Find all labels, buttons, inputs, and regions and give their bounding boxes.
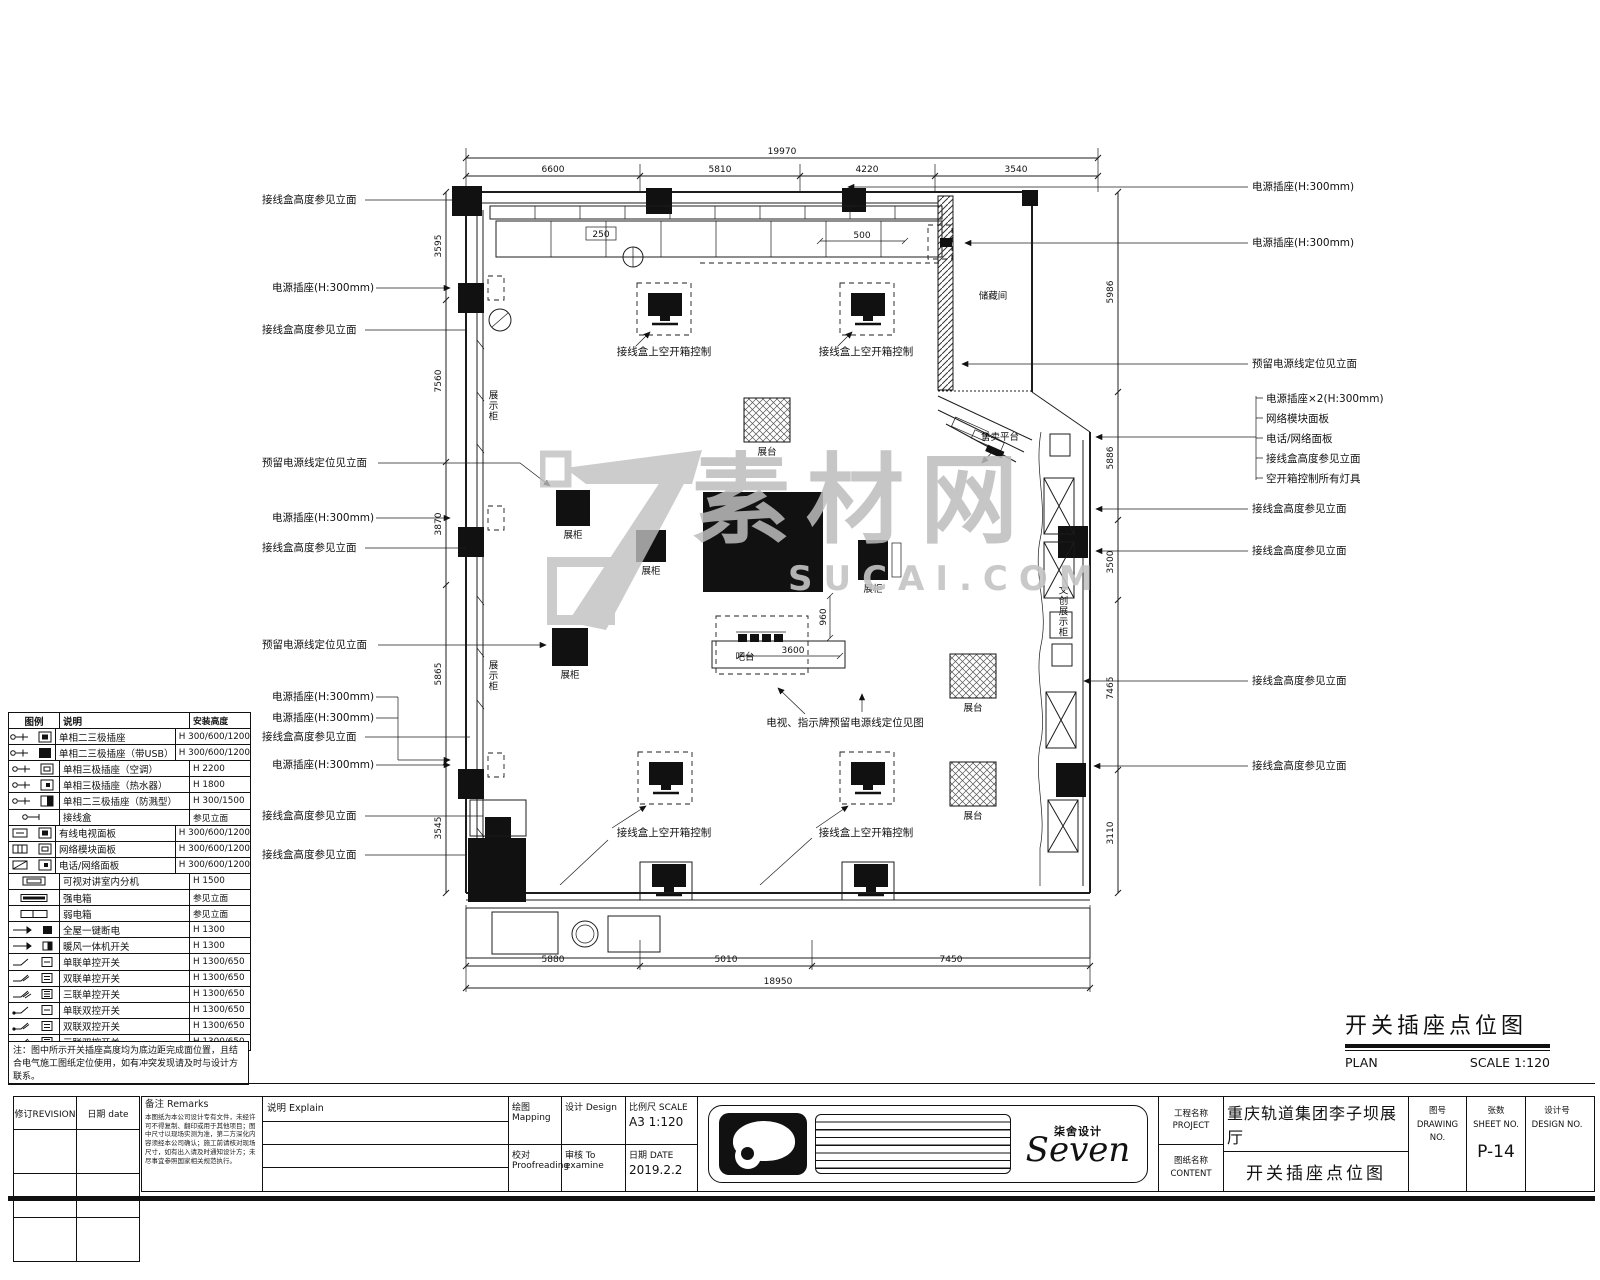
legend-desc: 强电箱 xyxy=(60,890,190,905)
design-no-cell: 设计号 DESIGN NO. xyxy=(1526,1097,1588,1191)
legend-symbol-cell xyxy=(9,745,56,760)
svg-text:电视、指示牌预留电源线定位见图: 电视、指示牌预留电源线定位见图 xyxy=(766,716,924,729)
svg-text:5986: 5986 xyxy=(1106,280,1116,303)
label-display-cabinet: 展示柜 xyxy=(487,660,499,692)
legend-desc: 双联双控开关 xyxy=(60,1019,190,1034)
project-label-en: PROJECT xyxy=(1173,1120,1210,1133)
drawing-no-cell: 图号 DRAWING NO. xyxy=(1409,1097,1467,1191)
svg-text:接线盒高度参见立面: 接线盒高度参见立面 xyxy=(262,809,357,822)
legend-desc: 单联双控开关 xyxy=(60,1003,190,1018)
svg-text:3110: 3110 xyxy=(1106,821,1116,844)
title-underline xyxy=(1345,1044,1550,1048)
label-bar: 吧台 xyxy=(735,651,754,663)
legend-row: 有线电视面板 H 300/600/1200 xyxy=(9,826,250,842)
dim-top-2: 5810 xyxy=(709,165,732,175)
svg-text:电源插座(H:300mm): 电源插座(H:300mm) xyxy=(272,711,374,724)
svg-text:接线盒高度参见立面: 接线盒高度参见立面 xyxy=(262,730,357,743)
svg-text:电源插座(H:300mm): 电源插座(H:300mm) xyxy=(272,281,374,294)
legend-desc: 电话/网络面板 xyxy=(56,858,176,873)
design-no-label: 设计号 xyxy=(1526,1105,1588,1119)
svg-text:展台: 展台 xyxy=(757,446,776,458)
sheet-no-label: 张数 xyxy=(1473,1105,1519,1119)
legend-desc: 网络模块面板 xyxy=(56,842,176,857)
svg-text:7450: 7450 xyxy=(940,955,963,965)
revision-row xyxy=(14,1218,139,1261)
svg-text:展台: 展台 xyxy=(963,702,982,714)
legend-symbol-icon xyxy=(11,875,57,887)
dimension-top: 19970 6600 5810 4220 3540 xyxy=(463,147,1101,192)
svg-text:接线盒上空开箱控制: 接线盒上空开箱控制 xyxy=(617,345,712,358)
legend-symbol-icon xyxy=(11,795,57,807)
legend-symbol-icon xyxy=(11,892,57,904)
svg-text:接线盒上空开箱控制: 接线盒上空开箱控制 xyxy=(819,826,914,839)
svg-text:接线盒上空开箱控制: 接线盒上空开箱控制 xyxy=(617,826,712,839)
label-cultural-cabinet: 文创展示柜 xyxy=(1057,584,1069,637)
legend-row: 暖风一体机开关 H 1300 xyxy=(9,938,250,954)
legend-desc: 单相二三极插座（带USB） xyxy=(56,745,176,760)
logo-lines-decoration xyxy=(815,1114,1011,1174)
legend-header-desc: 说明 xyxy=(60,713,190,728)
svg-text:接线盒高度参见立面: 接线盒高度参见立面 xyxy=(262,193,357,206)
dim-top-1: 6600 xyxy=(542,165,565,175)
legend-desc: 三联单控开关 xyxy=(60,987,190,1002)
legend-symbol-icon xyxy=(11,972,57,984)
svg-text:接线盒高度参见立面: 接线盒高度参见立面 xyxy=(262,541,357,554)
legend-row: 三联单控开关 H 1300/650 xyxy=(9,987,250,1003)
titleblock-top-rule xyxy=(8,1083,1595,1084)
project-content-labels: 工程名称 PROJECT 图纸名称 CONTENT xyxy=(1159,1097,1224,1191)
svg-text:空开箱控制所有灯具: 空开箱控制所有灯具 xyxy=(1266,472,1361,485)
svg-text:电源插座(H:300mm): 电源插座(H:300mm) xyxy=(1252,180,1354,193)
sheet-bottom-rule xyxy=(8,1196,1595,1201)
legend-desc: 可视对讲室内分机 xyxy=(60,874,190,889)
design-label: 设计 Design xyxy=(562,1097,625,1145)
scale-label: 比例尺 SCALE xyxy=(629,1100,694,1113)
sheet-content-name: 开关插座点位图 xyxy=(1224,1152,1408,1191)
svg-text:18950: 18950 xyxy=(764,977,793,987)
legend-row: 单相二三极插座（防溅型） H 300/1500 xyxy=(9,793,250,809)
legend-height: 参见立面 xyxy=(190,890,250,905)
label-display-cabinet: 展示柜 xyxy=(487,390,499,422)
svg-text:展柜: 展柜 xyxy=(563,529,583,541)
legend-symbol-icon xyxy=(11,1020,57,1032)
legend-symbol-cell xyxy=(9,1019,60,1034)
project-label: 工程名称 xyxy=(1174,1108,1208,1121)
svg-text:接线盒上空开箱控制: 接线盒上空开箱控制 xyxy=(819,345,914,358)
legend-height: H 300/600/1200 xyxy=(176,826,250,841)
svg-text:接线盒高度参见立面: 接线盒高度参见立面 xyxy=(262,323,357,336)
legend-row: 网络模块面板 H 300/600/1200 xyxy=(9,842,250,858)
legend-height: H 300/600/1200 xyxy=(176,745,250,760)
legend-height: H 2200 xyxy=(190,761,250,776)
sales-counter: 售卖平台 xyxy=(938,396,1032,463)
explain-cell: 说明 Explain xyxy=(263,1097,509,1191)
legend-symbol-icon xyxy=(11,988,57,1000)
legend-symbol-cell xyxy=(9,729,56,744)
legend-symbol-icon xyxy=(11,956,57,968)
drawing-no-label-en: DRAWING NO. xyxy=(1409,1119,1466,1146)
legend-row: 弱电箱 参见立面 xyxy=(9,906,250,922)
legend-desc: 接线盒 xyxy=(60,810,190,825)
svg-text:接线盒高度参见立面: 接线盒高度参见立面 xyxy=(262,848,357,861)
legend-height: H 300/1500 xyxy=(190,793,250,808)
brand-name-en: Seven xyxy=(1019,1135,1137,1166)
svg-text:7560: 7560 xyxy=(434,369,444,392)
legend-row: 强电箱 参见立面 xyxy=(9,890,250,906)
legend-symbol-cell xyxy=(9,793,60,808)
legend-symbol-cell xyxy=(9,761,60,776)
svg-text:电源插座(H:300mm): 电源插座(H:300mm) xyxy=(272,511,374,524)
revision-date-label: 日期 date xyxy=(77,1097,139,1129)
legend-height: H 1300 xyxy=(190,938,250,953)
sheet-number: P-14 xyxy=(1477,1142,1515,1162)
legend-desc: 单相三极插座（热水器） xyxy=(60,777,190,792)
legend-symbol-cell xyxy=(9,971,60,986)
exhibition-stands: 展台 展台 展台 xyxy=(744,398,996,822)
svg-text:5865: 5865 xyxy=(434,663,444,686)
logo-frame: 柒舍设计 Seven xyxy=(708,1105,1148,1183)
svg-text:3595: 3595 xyxy=(434,235,444,258)
svg-text:3870: 3870 xyxy=(434,512,444,535)
legend-symbol-icon xyxy=(11,908,57,920)
legend-row: 单相二三极插座（带USB） H 300/600/1200 xyxy=(9,745,250,761)
revision-label: 修订REVISION xyxy=(14,1097,77,1129)
svg-text:3545: 3545 xyxy=(434,817,444,840)
svg-text:展柜: 展柜 xyxy=(641,565,661,577)
legend-row: 双联单控开关 H 1300/650 xyxy=(9,971,250,987)
legend-table: 图例 说明 安装高度 单相二三极插座 H 300/600/1200 单相二三极插… xyxy=(8,712,251,1051)
legend-row: 可视对讲室内分机 H 1500 xyxy=(9,874,250,890)
dim-top-total: 19970 xyxy=(768,147,797,157)
mapping-label: 绘图 Mapping xyxy=(509,1097,561,1145)
svg-text:7465: 7465 xyxy=(1106,677,1116,700)
legend-symbol-icon xyxy=(11,763,57,775)
scale-date-cell: 比例尺 SCALE A3 1:120 日期 DATE 2019.2.2 xyxy=(626,1097,698,1191)
legend-height: H 1300/650 xyxy=(190,971,250,986)
svg-text:接线盒高度参见立面: 接线盒高度参见立面 xyxy=(1252,544,1347,557)
dim-top-4: 3540 xyxy=(1005,165,1028,175)
legend-row: 接线盒 参见立面 xyxy=(9,810,250,826)
svg-text:电源插座(H:300mm): 电源插座(H:300mm) xyxy=(272,690,374,703)
plan-label: PLAN xyxy=(1345,1055,1378,1070)
svg-text:展台: 展台 xyxy=(963,810,982,822)
legend-desc: 全屋一键断电 xyxy=(60,922,190,937)
legend-symbol-icon xyxy=(11,940,57,952)
legend-height: H 1300/650 xyxy=(190,954,250,969)
legend-symbol-icon xyxy=(11,811,57,823)
legend-symbol-icon xyxy=(9,859,55,871)
revision-table: 修订REVISION 日期 date xyxy=(13,1096,140,1262)
legend-height: H 300/600/1200 xyxy=(176,842,250,857)
storage-room: 储藏间 xyxy=(928,196,1032,391)
legend-height: H 1300 xyxy=(190,922,250,937)
legend-symbol-icon xyxy=(9,747,55,759)
svg-text:5880: 5880 xyxy=(542,955,565,965)
svg-text:250: 250 xyxy=(592,230,609,240)
legend-row: 单联单控开关 H 1300/650 xyxy=(9,954,250,970)
legend-height: H 1800 xyxy=(190,777,250,792)
legend-desc: 暖风一体机开关 xyxy=(60,938,190,953)
remarks-text: 本图纸为本公司设计专有文件，未经许可不得复制、翻印或用于其他项目；图中尺寸以现场… xyxy=(145,1113,259,1166)
project-name: 重庆轨道集团李子坝展厅 xyxy=(1224,1097,1408,1152)
bar-counter: 吧台 3600 960 xyxy=(712,593,845,674)
svg-text:3600: 3600 xyxy=(782,646,805,656)
legend-row: 全屋一键断电 H 1300 xyxy=(9,922,250,938)
legend-symbol-cell xyxy=(9,987,60,1002)
project-content-values: 重庆轨道集团李子坝展厅 开关插座点位图 xyxy=(1224,1097,1409,1191)
sheet-no-cell: 张数 SHEET NO. P-14 xyxy=(1467,1097,1526,1191)
legend-symbol-icon xyxy=(9,843,55,855)
svg-text:3500: 3500 xyxy=(1106,550,1116,573)
legend-desc: 单相三极插座（空调） xyxy=(60,761,190,776)
drawing-title: 开关插座点位图 xyxy=(1345,1008,1550,1040)
revision-row xyxy=(14,1130,139,1174)
legend-symbol-cell xyxy=(9,890,60,905)
remarks-cell: 备注 Remarks 本图纸为本公司设计专有文件，未经许可不得复制、翻印或用于其… xyxy=(142,1097,263,1191)
svg-text:5886: 5886 xyxy=(1106,446,1116,469)
legend-row: 电话/网络面板 H 300/600/1200 xyxy=(9,858,250,874)
floor-plan: 19970 6600 5810 4220 3540 3595 7560 3870… xyxy=(0,0,1600,1280)
legend-symbol-icon xyxy=(11,1004,57,1016)
content-label-en: CONTENT xyxy=(1170,1168,1211,1181)
legend-header-symbol: 图例 xyxy=(9,713,60,728)
legend-row: 单相二三极插座 H 300/600/1200 xyxy=(9,729,250,745)
legend-symbol-cell xyxy=(9,842,56,857)
legend-height: 参见立面 xyxy=(190,906,250,921)
legend-row: 单联双控开关 H 1300/650 xyxy=(9,1003,250,1019)
svg-text:接线盒高度参见立面: 接线盒高度参见立面 xyxy=(1252,502,1347,515)
dimension-right: 5986 5886 3500 7465 3110 xyxy=(1106,189,1121,896)
title-underline-thin xyxy=(1345,1050,1550,1051)
annotations-left: 接线盒高度参见立面 电源插座(H:300mm) 接线盒高度参见立面 预留电源线定… xyxy=(262,193,550,861)
legend-height: H 1300/650 xyxy=(190,987,250,1002)
legend-desc: 有线电视面板 xyxy=(56,826,176,841)
label-sales: 售卖平台 xyxy=(981,431,1019,443)
legend-symbol-icon xyxy=(9,731,55,743)
explain-label: 说明 Explain xyxy=(263,1097,508,1117)
sheet-no-label-en: SHEET NO. xyxy=(1473,1119,1519,1133)
date-value: 2019.2.2 xyxy=(629,1163,694,1177)
legend-height: H 1500 xyxy=(190,874,250,889)
legend-symbol-cell xyxy=(9,777,60,792)
svg-text:网络模块面板: 网络模块面板 xyxy=(1266,412,1329,425)
proofread-label: 校对 Proofreading xyxy=(509,1145,561,1192)
svg-text:预留电源线定位见立面: 预留电源线定位见立面 xyxy=(262,456,367,469)
mapping-proofread-cell: 绘图 Mapping 校对 Proofreading xyxy=(509,1097,562,1191)
title-block: 备注 Remarks 本图纸为本公司设计专有文件，未经许可不得复制、翻印或用于其… xyxy=(141,1096,1595,1192)
svg-text:5010: 5010 xyxy=(715,955,738,965)
right-display-wall: 文创展示柜 xyxy=(1038,432,1078,886)
examine-label: 审核 To examine xyxy=(562,1145,625,1192)
legend-symbol-cell xyxy=(9,922,60,937)
legend-symbol-cell xyxy=(9,1003,60,1018)
brand: 柒舍设计 Seven xyxy=(1019,1123,1137,1166)
dimension-left: 3595 7560 3870 5865 3545 xyxy=(434,189,449,896)
legend-symbol-cell xyxy=(9,874,60,889)
central-display-block xyxy=(703,492,823,592)
legend-desc: 单相二三极插座 xyxy=(56,729,176,744)
remarks-label: 备注 Remarks xyxy=(145,1099,259,1112)
svg-text:预留电源线定位见立面: 预留电源线定位见立面 xyxy=(1252,357,1357,370)
legend-symbol-cell xyxy=(9,954,60,969)
svg-text:500: 500 xyxy=(853,231,870,241)
legend-height: H 1300/650 xyxy=(190,1003,250,1018)
legend-symbol-cell xyxy=(9,810,60,825)
legend-header-height: 安装高度 xyxy=(190,713,250,728)
legend-desc: 弱电箱 xyxy=(60,906,190,921)
legend-height: H 1300/650 xyxy=(190,1019,250,1034)
svg-text:电源插座×2(H:300mm): 电源插座×2(H:300mm) xyxy=(1266,392,1384,405)
svg-text:预留电源线定位见立面: 预留电源线定位见立面 xyxy=(262,638,367,651)
svg-text:展柜: 展柜 xyxy=(863,583,883,595)
date-label: 日期 DATE xyxy=(629,1148,694,1161)
svg-text:展柜: 展柜 xyxy=(560,669,580,681)
svg-text:接线盒高度参见立面: 接线盒高度参见立面 xyxy=(1252,759,1347,772)
svg-text:接线盒高度参见立面: 接线盒高度参见立面 xyxy=(1252,674,1347,687)
svg-text:960: 960 xyxy=(819,608,829,625)
design-examine-cell: 设计 Design 审核 To examine xyxy=(562,1097,626,1191)
legend-symbol-cell xyxy=(9,826,56,841)
dim-top-3: 4220 xyxy=(856,165,879,175)
legend-row: 单相三极插座（空调） H 2200 xyxy=(9,761,250,777)
legend-row: 单相三极插座（热水器） H 1800 xyxy=(9,777,250,793)
content-label: 图纸名称 xyxy=(1174,1155,1208,1168)
cad-sheet: 19970 6600 5810 4220 3540 3595 7560 3870… xyxy=(0,0,1600,1280)
scale-value: A3 1:120 xyxy=(629,1115,694,1129)
company-logo-cell: 柒舍设计 Seven xyxy=(698,1097,1159,1191)
svg-text:接线盒高度参见立面: 接线盒高度参见立面 xyxy=(1266,452,1361,465)
drawing-no-label: 图号 xyxy=(1409,1105,1466,1119)
svg-text:电话/网络面板: 电话/网络面板 xyxy=(1266,432,1333,445)
legend-symbol-cell xyxy=(9,858,56,873)
legend-symbol-icon xyxy=(11,924,57,936)
legend-height: H 300/600/1200 xyxy=(176,858,250,873)
legend-desc: 单相二三极插座（防溅型） xyxy=(60,793,190,808)
legend-desc: 单联单控开关 xyxy=(60,954,190,969)
legend-symbol-cell xyxy=(9,938,60,953)
legend-symbol-icon xyxy=(11,779,57,791)
scale-label: SCALE 1:120 xyxy=(1470,1055,1550,1070)
legend-note: 注：图中所示开关插座高度均为底边距完成面位置，且结合电气施工图纸定位使用，如有冲… xyxy=(8,1041,249,1085)
legend-header: 图例 说明 安装高度 xyxy=(9,713,250,729)
drawing-title-block: 开关插座点位图 PLAN SCALE 1:120 xyxy=(1345,1008,1550,1070)
center-furniture: 展柜 展柜 展柜 展柜 展示柜 展示柜 xyxy=(487,390,902,692)
legend-height: 参见立面 xyxy=(190,810,250,825)
legend-row: 双联双控开关 H 1300/650 xyxy=(9,1019,250,1035)
svg-text:电源插座(H:300mm): 电源插座(H:300mm) xyxy=(1252,236,1354,249)
legend-height: H 300/600/1200 xyxy=(176,729,250,744)
legend-symbol-icon xyxy=(9,827,55,839)
label-storage-room: 储藏间 xyxy=(979,290,1008,302)
company-logo-icon xyxy=(719,1113,807,1175)
design-no-label-en: DESIGN NO. xyxy=(1526,1119,1588,1133)
legend-symbol-cell xyxy=(9,906,60,921)
annotations-inplan: 接线盒上空开箱控制 接线盒上空开箱控制 接线盒上空开箱控制 接线盒上空开箱控制 … xyxy=(560,332,924,885)
svg-text:电源插座(H:300mm): 电源插座(H:300mm) xyxy=(272,758,374,771)
legend-desc: 双联单控开关 xyxy=(60,971,190,986)
